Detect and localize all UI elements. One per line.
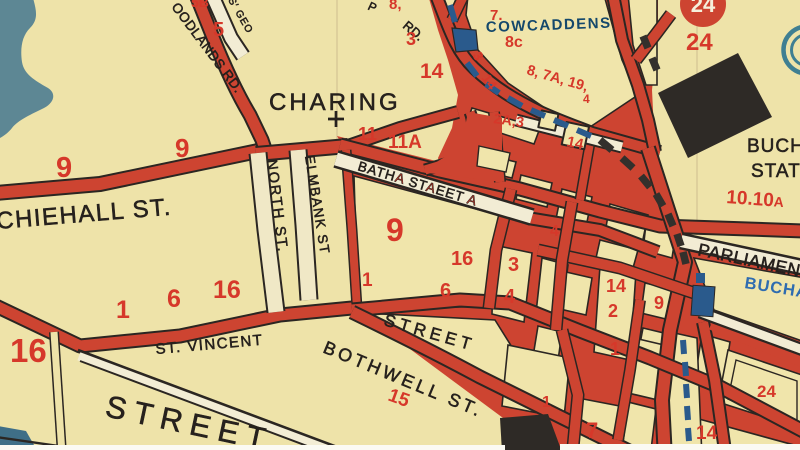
svg-text:3: 3 [406, 29, 416, 49]
svg-text:1: 1 [610, 339, 620, 359]
svg-text:4: 4 [550, 223, 559, 240]
svg-text:14: 14 [696, 423, 718, 444]
svg-text:2: 2 [608, 301, 618, 321]
svg-text:24: 24 [691, 0, 716, 17]
svg-text:7.: 7. [490, 7, 503, 24]
svg-text:3: 3 [508, 254, 519, 276]
svg-text:8,: 8, [389, 0, 402, 13]
svg-text:14: 14 [420, 60, 444, 83]
svg-text:BUCH: BUCH [747, 136, 800, 157]
svg-text:STAT: STAT [751, 161, 800, 182]
svg-text:1: 1 [362, 270, 373, 291]
svg-text:CHARING: CHARING [269, 89, 401, 116]
svg-text:1: 1 [116, 296, 130, 324]
svg-text:24: 24 [757, 382, 776, 401]
svg-text:14: 14 [606, 276, 626, 296]
svg-text:5B: 5B [191, 0, 209, 10]
svg-text:16: 16 [451, 248, 473, 270]
svg-text:9: 9 [56, 152, 72, 184]
svg-text:7: 7 [586, 418, 598, 443]
svg-text:16: 16 [10, 332, 47, 369]
svg-text:11A: 11A [388, 132, 422, 153]
svg-text:4: 4 [583, 92, 590, 106]
svg-text:5: 5 [213, 19, 224, 41]
svg-text:1: 1 [542, 394, 551, 411]
svg-text:9: 9 [386, 212, 404, 248]
svg-text:16: 16 [213, 276, 241, 304]
svg-text:9: 9 [175, 133, 189, 163]
svg-text:4: 4 [504, 286, 516, 308]
svg-text:6: 6 [167, 285, 181, 313]
svg-text:8c: 8c [505, 34, 523, 51]
svg-text:9: 9 [654, 293, 664, 313]
svg-text:6: 6 [440, 280, 451, 302]
svg-text:11: 11 [358, 124, 377, 144]
svg-text:24: 24 [686, 29, 713, 56]
